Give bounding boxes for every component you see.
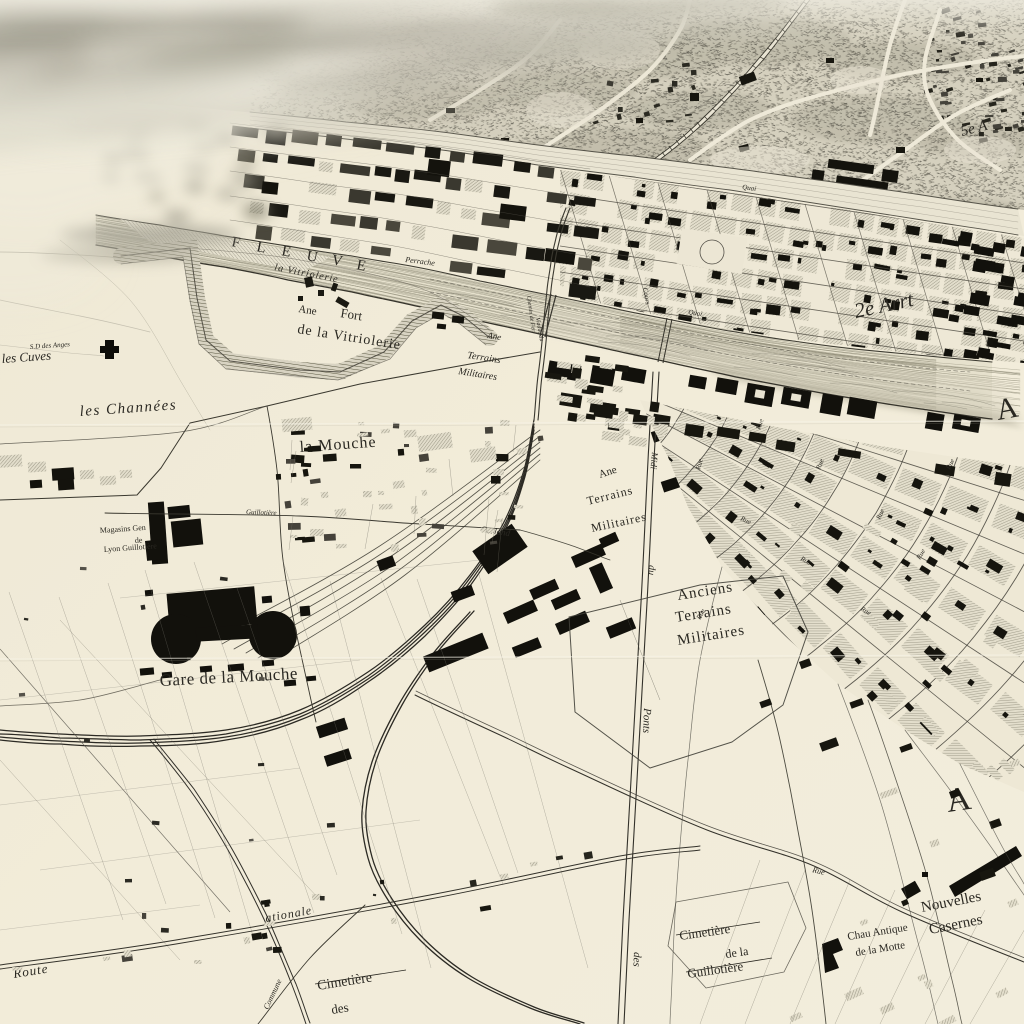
svg-text:des: des xyxy=(630,952,643,967)
svg-text:des: des xyxy=(330,999,349,1017)
svg-text:du: du xyxy=(645,565,657,576)
svg-text:Midi: Midi xyxy=(648,451,660,470)
svg-text:Guillotière: Guillotière xyxy=(246,508,277,517)
svg-text:Ponts: Ponts xyxy=(640,707,653,733)
